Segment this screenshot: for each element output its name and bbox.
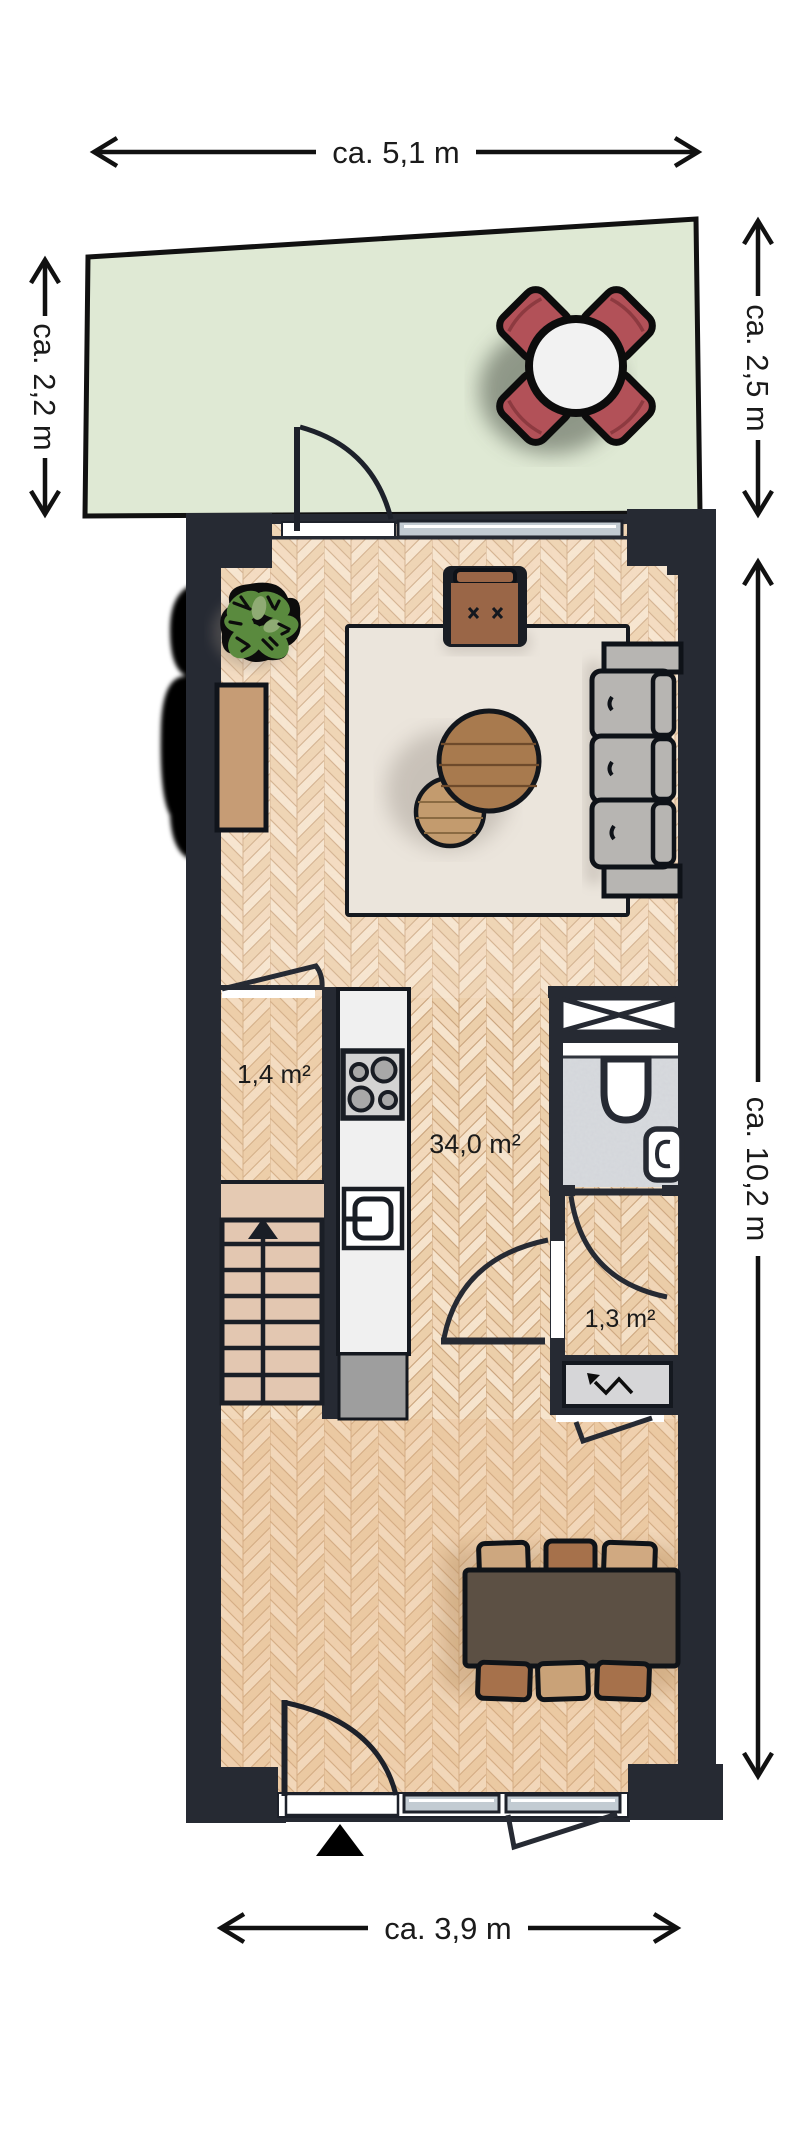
svg-text:34,0 m²: 34,0 m²	[429, 1129, 521, 1159]
svg-text:ca. 2,2 m: ca. 2,2 m	[27, 323, 62, 451]
svg-text:ca. 2,5 m: ca. 2,5 m	[740, 304, 775, 432]
svg-text:1,3 m²: 1,3 m²	[585, 1305, 656, 1333]
svg-text:ca. 3,9 m: ca. 3,9 m	[384, 1911, 512, 1946]
svg-text:1,4 m²: 1,4 m²	[237, 1059, 311, 1089]
svg-text:ca. 5,1 m: ca. 5,1 m	[332, 135, 460, 170]
svg-text:ca. 10,2 m: ca. 10,2 m	[740, 1097, 775, 1242]
